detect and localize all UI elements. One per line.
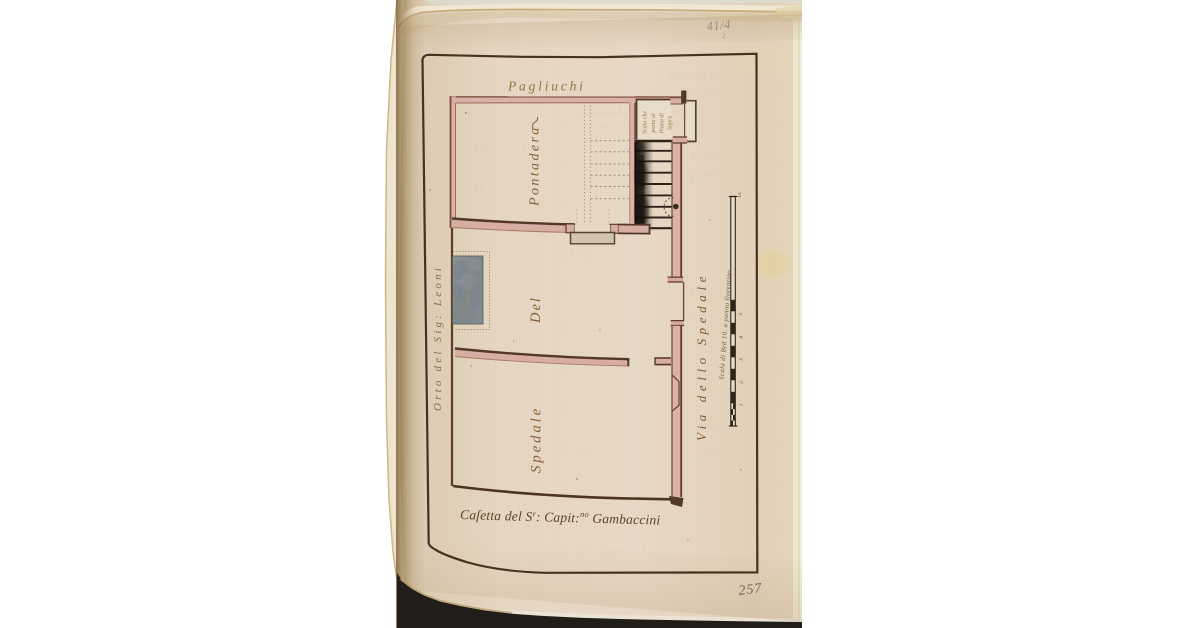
svg-text:Cisterna: Cisterna <box>466 286 472 305</box>
svg-text:si ritrova: si ritrova <box>600 272 633 282</box>
svg-text:Sopra: Sopra <box>668 116 674 130</box>
svg-text:10.: 10. <box>738 192 743 198</box>
svg-text:di detta: di detta <box>640 555 668 565</box>
svg-text:Pontadera: Pontadera <box>528 125 543 207</box>
svg-text:Scala che: Scala che <box>643 111 649 134</box>
svg-text:Via dello Spedale: Via dello Spedale <box>694 272 709 441</box>
svg-text:con le sue: con le sue <box>588 422 624 432</box>
svg-text:della parte di sopra: della parte di sopra <box>668 71 740 81</box>
svg-text:Spedale: Spedale <box>529 406 545 473</box>
svg-text:257: 257 <box>738 581 764 599</box>
svg-text:porta al: porta al <box>651 113 657 134</box>
svg-text:Pagliuchi: Pagliuchi <box>507 79 586 94</box>
svg-text:quali confina con: quali confina con <box>470 532 533 542</box>
svg-text:la parte: la parte <box>688 170 716 180</box>
svg-text:41/4: 41/4 <box>706 17 731 33</box>
svg-text:Del: Del <box>528 296 544 324</box>
svg-text:di sotto: di sotto <box>695 447 722 457</box>
svg-text:apparten: apparten <box>560 447 593 457</box>
svg-text:che confina con la via: che confina con la via <box>640 85 720 95</box>
svg-text:di sopra: di sopra <box>690 152 720 162</box>
svg-text:Piano di: Piano di <box>660 113 666 135</box>
svg-text:Orto del Sig: Leoni: Orto del Sig: Leoni <box>432 265 444 411</box>
svg-text:della casa che: della casa che <box>560 250 611 260</box>
